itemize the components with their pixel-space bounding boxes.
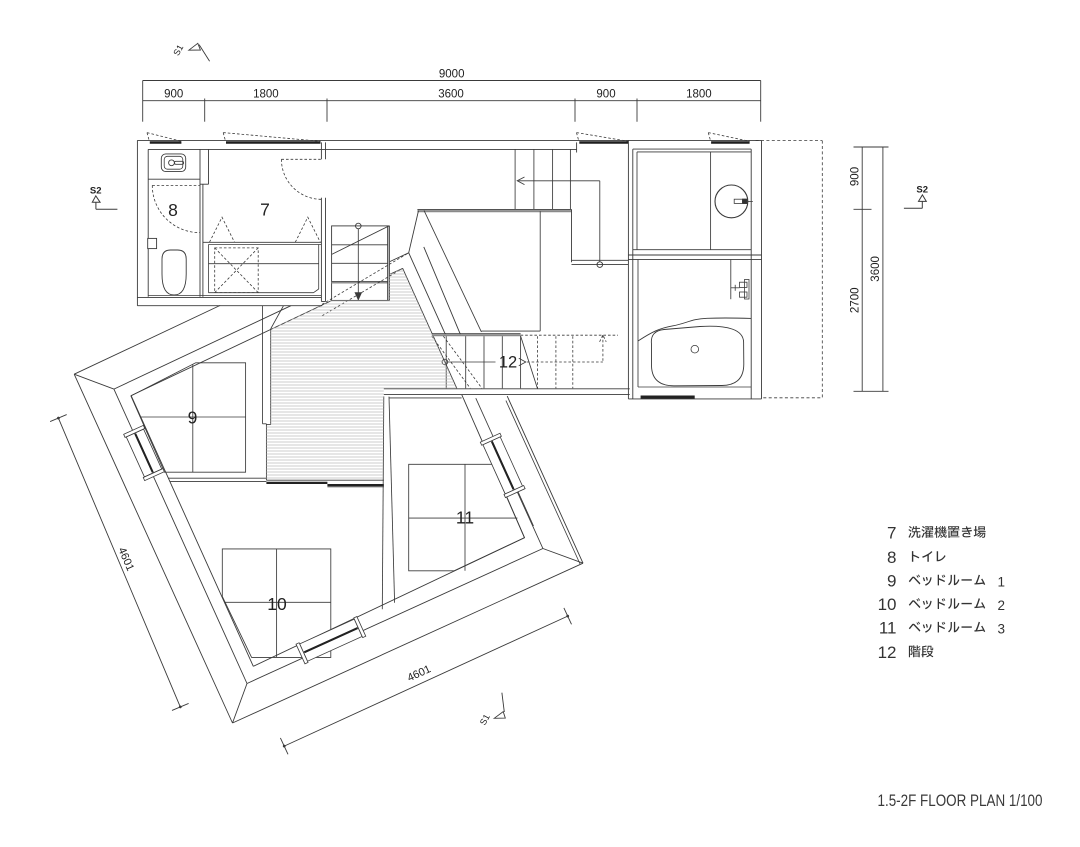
svg-text:S2: S2 [916,185,928,196]
svg-text:900: 900 [849,167,861,186]
svg-text:1800: 1800 [253,89,279,101]
svg-text:2700: 2700 [849,288,861,314]
svg-text:3600: 3600 [870,256,882,282]
svg-text:12: 12 [499,354,517,372]
svg-text:8: 8 [887,548,896,567]
svg-text:7: 7 [260,200,270,220]
svg-text:9: 9 [188,408,198,428]
svg-text:10: 10 [878,595,897,614]
svg-text:1.5-2F FLOOR PLAN 1/100: 1.5-2F FLOOR PLAN 1/100 [878,791,1043,810]
svg-text:900: 900 [596,89,615,101]
svg-text:1: 1 [998,574,1006,589]
svg-text:S2: S2 [90,185,102,196]
svg-text:11: 11 [879,619,897,638]
svg-text:11: 11 [456,508,474,528]
svg-text:3: 3 [998,622,1006,637]
svg-text:10: 10 [267,594,287,614]
svg-text:8: 8 [168,200,178,220]
svg-text:2: 2 [998,598,1006,613]
svg-text:1800: 1800 [686,89,712,101]
svg-text:3600: 3600 [438,89,464,101]
svg-text:7: 7 [887,523,896,542]
svg-text:900: 900 [164,89,183,101]
svg-text:9000: 9000 [439,69,465,81]
svg-text:9: 9 [887,571,896,590]
svg-text:12: 12 [878,643,897,662]
